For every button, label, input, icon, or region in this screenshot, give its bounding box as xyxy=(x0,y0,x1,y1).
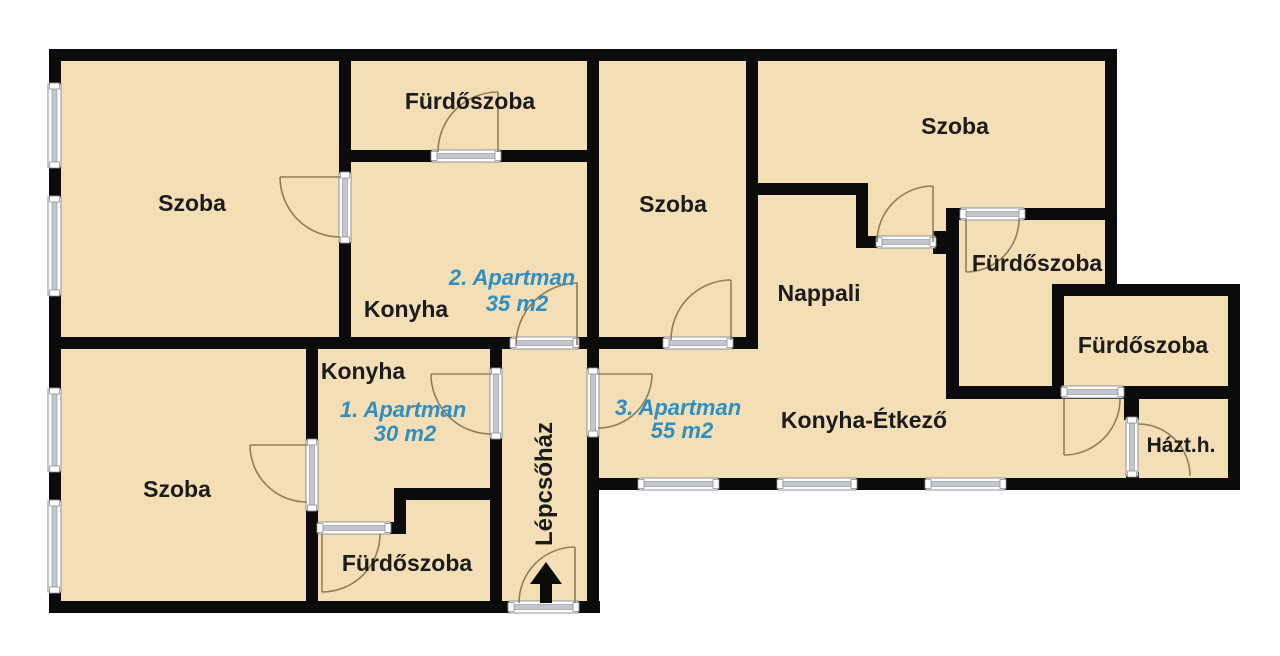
svg-text:Konyha-Étkező: Konyha-Étkező xyxy=(781,406,947,433)
svg-text:Konyha: Konyha xyxy=(364,296,449,322)
svg-text:Szoba: Szoba xyxy=(639,191,707,217)
svg-text:2. Apartman: 2. Apartman xyxy=(448,265,575,290)
svg-text:35 m2: 35 m2 xyxy=(486,291,549,316)
svg-text:Szoba: Szoba xyxy=(158,190,226,216)
svg-text:3. Apartman: 3. Apartman xyxy=(615,395,741,420)
svg-text:Szoba: Szoba xyxy=(143,476,211,502)
svg-text:Fürdőszoba: Fürdőszoba xyxy=(405,88,536,114)
svg-text:Konyha: Konyha xyxy=(321,358,406,384)
svg-text:Fürdőszoba: Fürdőszoba xyxy=(1078,332,1209,358)
svg-text:Fürdőszoba: Fürdőszoba xyxy=(342,550,473,576)
svg-text:30 m2: 30 m2 xyxy=(374,421,437,446)
svg-text:Fürdőszoba: Fürdőszoba xyxy=(972,250,1103,276)
svg-text:Nappali: Nappali xyxy=(777,280,860,306)
svg-text:55 m2: 55 m2 xyxy=(651,418,714,443)
svg-text:Házt.h.: Házt.h. xyxy=(1147,434,1216,457)
svg-text:Lépcsőház: Lépcsőház xyxy=(531,422,558,546)
svg-text:1. Apartman: 1. Apartman xyxy=(340,397,466,422)
svg-text:Szoba: Szoba xyxy=(921,113,989,139)
